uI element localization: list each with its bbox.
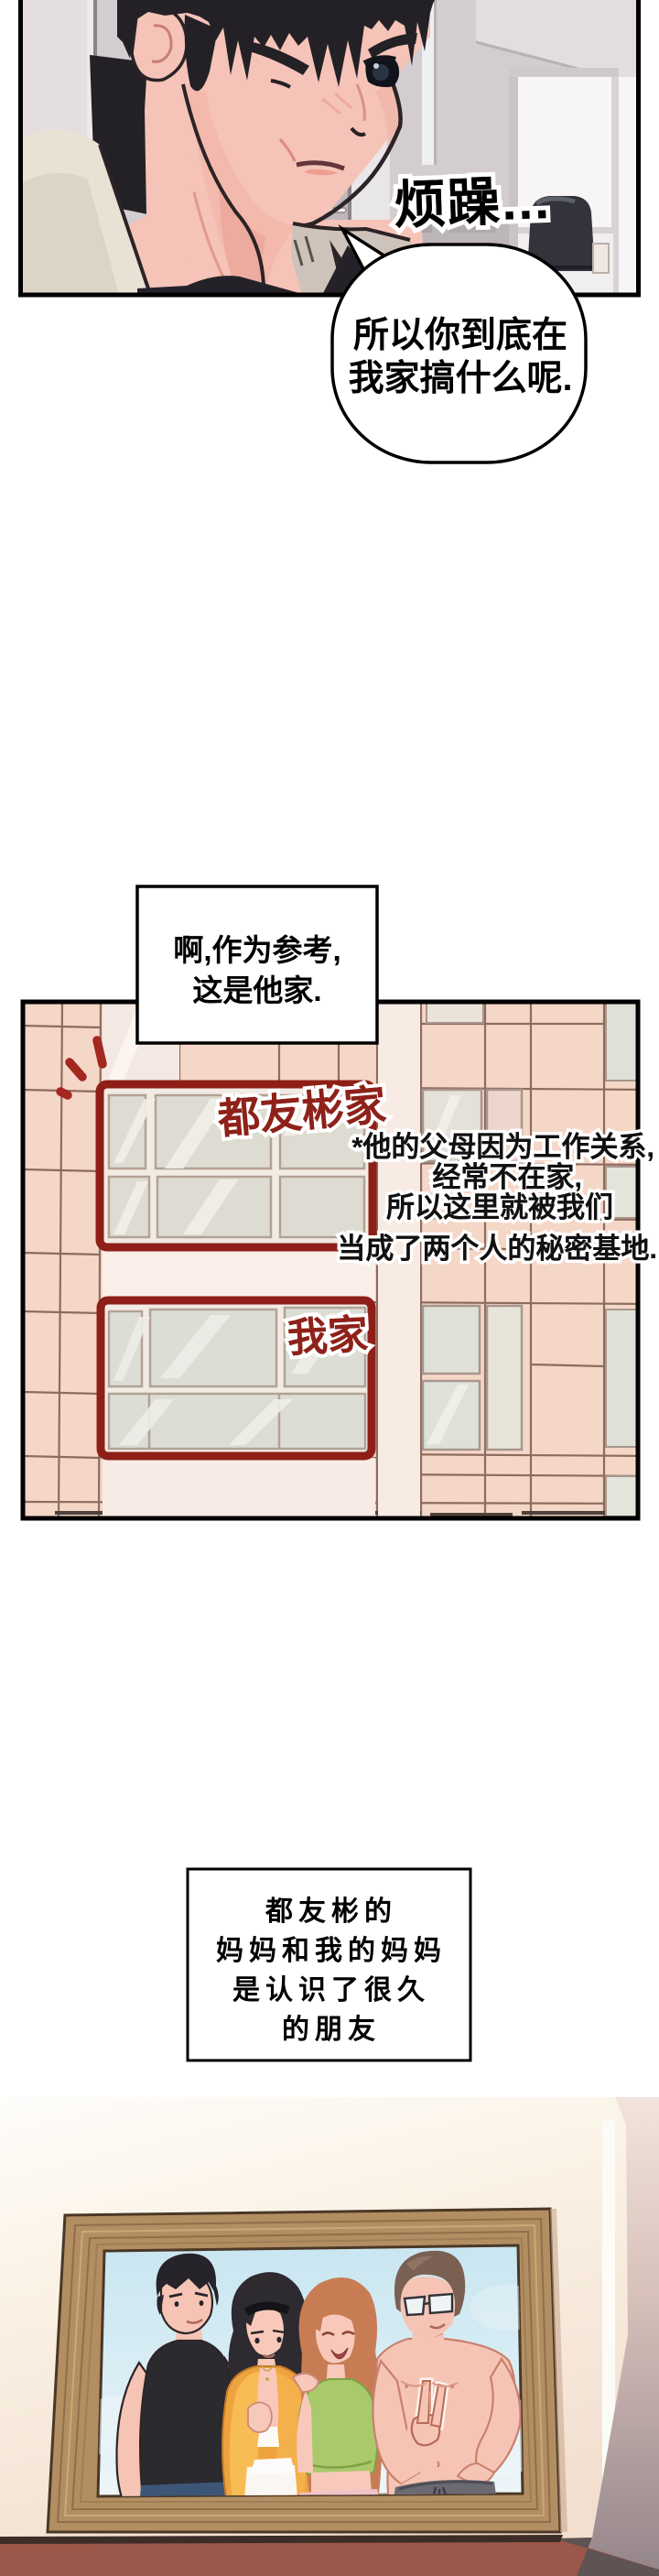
svg-text:当成了两个人的秘密基地.: 当成了两个人的秘密基地. [337,1233,657,1265]
svg-text:这是他家.: 这是他家. [192,973,321,1007]
svg-text:是认识了很久: 是认识了很久 [232,1975,430,2005]
svg-text:所以这里就被我们: 所以这里就被我们 [386,1191,613,1223]
svg-text:经常不在家,: 经常不在家, [432,1161,582,1193]
svg-text:我家搞什么呢.: 我家搞什么呢. [349,359,573,398]
svg-text:妈妈和我的妈妈: 妈妈和我的妈妈 [216,1936,447,1966]
svg-text:烦躁...: 烦躁... [393,171,552,235]
svg-text:所以你到底在: 所以你到底在 [353,316,567,355]
svg-text:我家: 我家 [286,1312,369,1362]
svg-text:*他的父母因为工作关系,: *他的父母因为工作关系, [351,1131,654,1163]
svg-text:啊,作为参考,: 啊,作为参考, [173,933,340,967]
svg-text:的朋友: 的朋友 [282,2015,381,2045]
svg-text:都友彬的: 都友彬的 [265,1897,397,1927]
